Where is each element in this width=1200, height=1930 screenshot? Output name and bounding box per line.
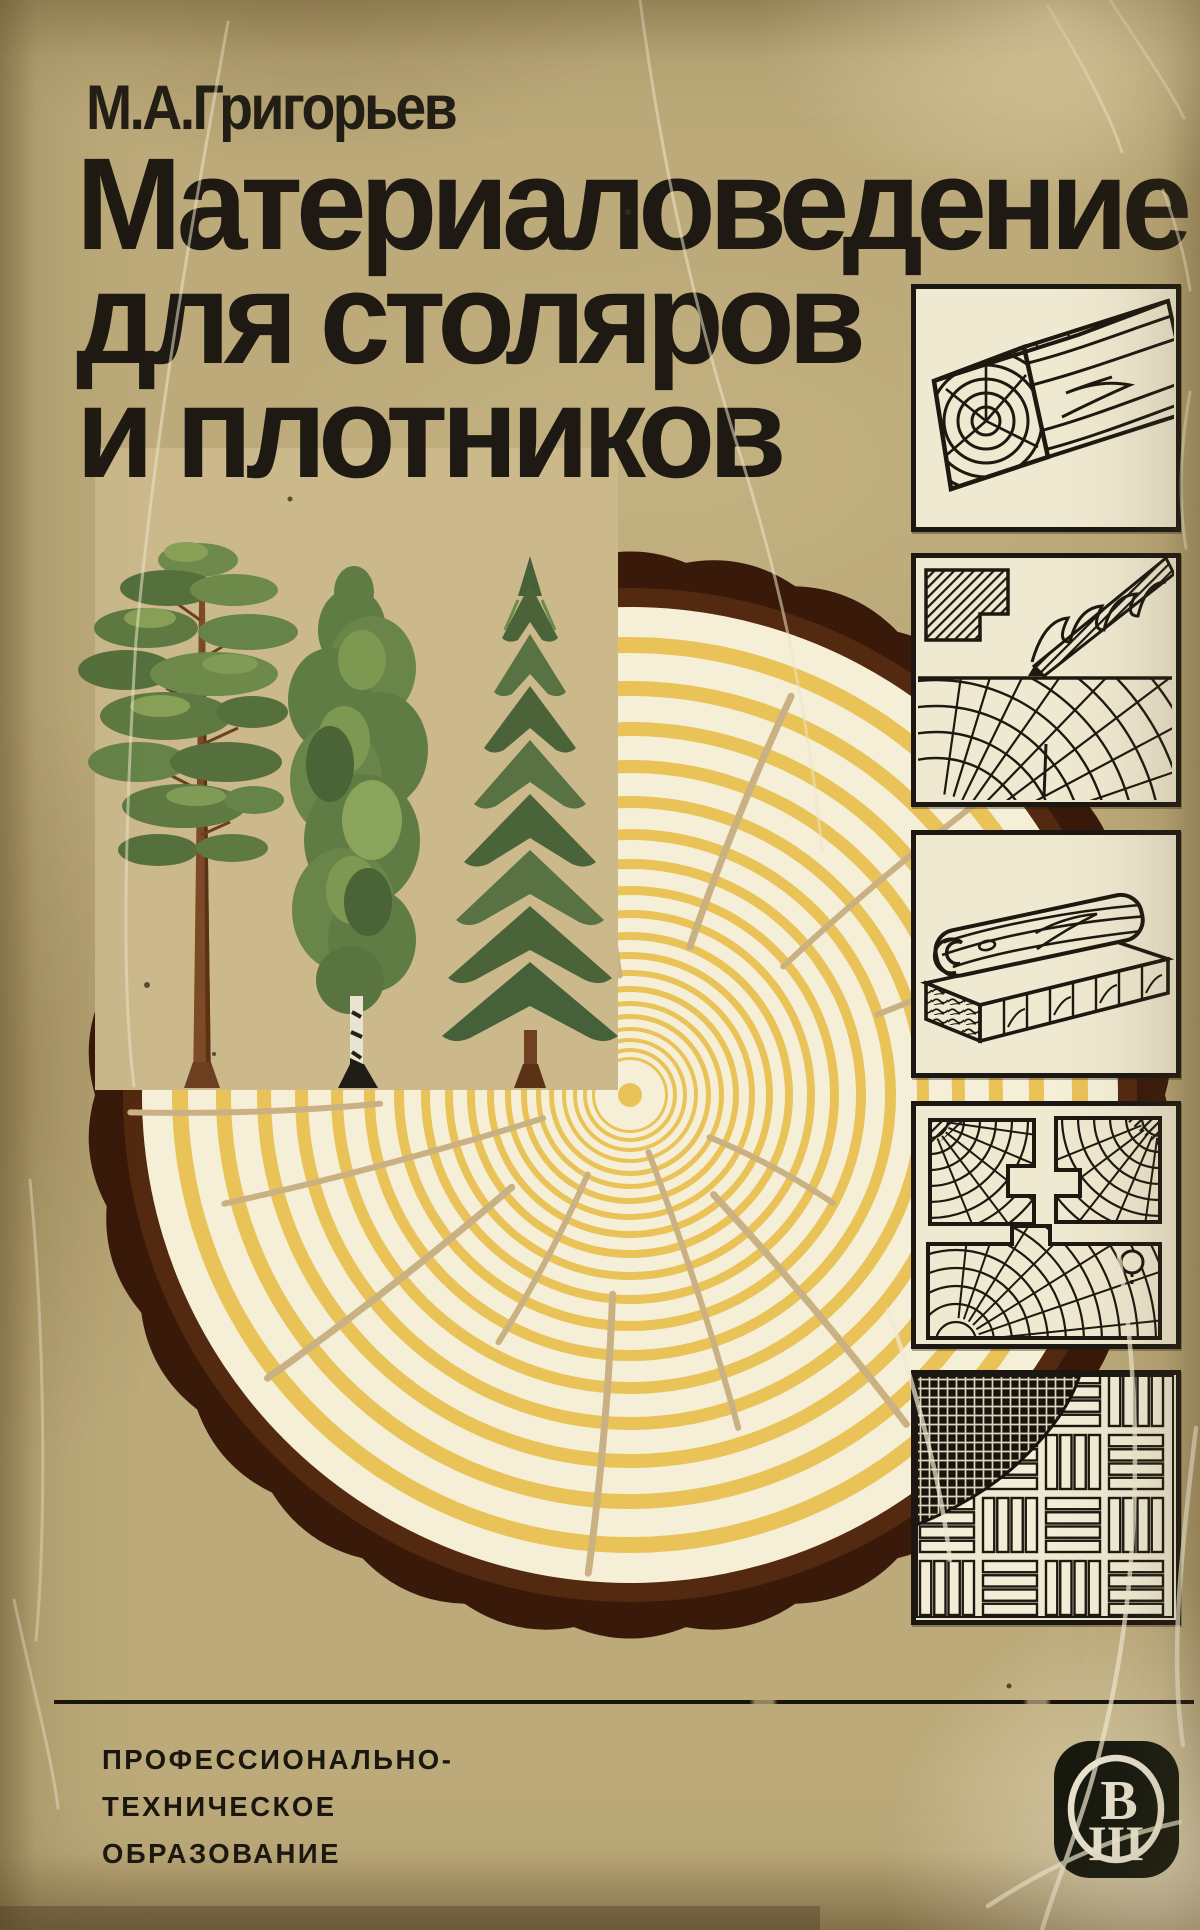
panel-joinery-profiles <box>911 1101 1181 1349</box>
panel-board-and-panel <box>911 830 1181 1078</box>
knife-cutting-end-grain-sketch <box>916 558 1174 800</box>
planed-board-and-glued-panel-sketch <box>916 835 1174 1071</box>
series-line-2: ТЕХНИЧЕСКОЕ <box>102 1783 453 1830</box>
squared-timber-beam-sketch <box>916 289 1174 525</box>
panel-wood-cutting <box>911 553 1181 807</box>
logo-letter-sh: Ш <box>1089 1815 1144 1871</box>
series-divider-line <box>54 1700 1194 1704</box>
title-line-3: и плотников <box>76 366 780 497</box>
series-text: ПРОФЕССИОНАЛЬНО- ТЕХНИЧЕСКОЕ ОБРАЗОВАНИЕ <box>102 1736 453 1877</box>
profiled-joinery-sections-sketch <box>916 1106 1174 1342</box>
book-cover: М.А.Григорьев Материаловедение для столя… <box>0 0 1200 1930</box>
series-line-3: ОБРАЗОВАНИЕ <box>102 1830 453 1877</box>
parquet-basket-weave-sketch <box>916 1375 1174 1618</box>
series-line-1: ПРОФЕССИОНАЛЬНО- <box>102 1736 453 1783</box>
vysshaya-shkola-publisher-logo: В Ш <box>1053 1740 1180 1879</box>
panel-parquet <box>911 1370 1181 1625</box>
panel-squared-beam <box>911 284 1181 532</box>
